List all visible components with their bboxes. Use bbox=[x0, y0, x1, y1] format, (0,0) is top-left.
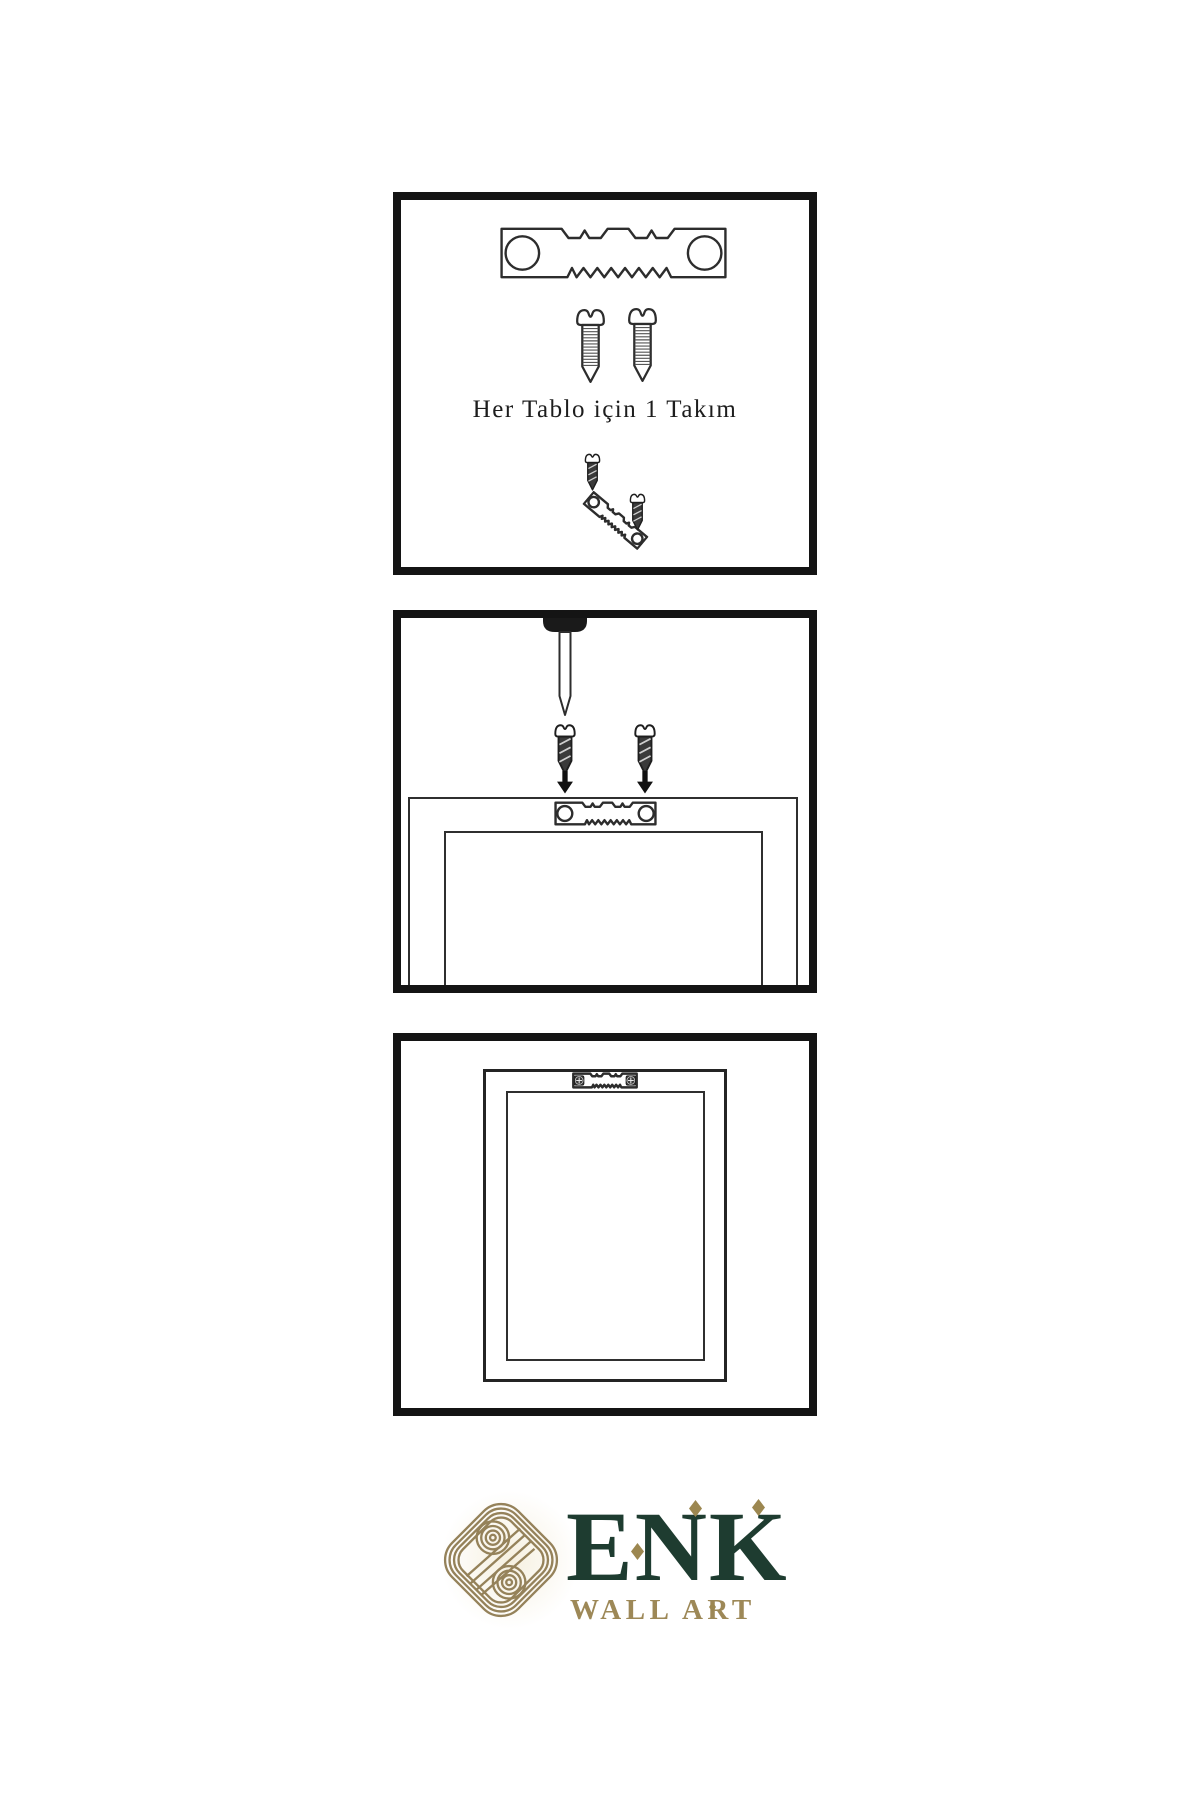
sawtooth-hanger-icon bbox=[554, 800, 657, 827]
screw-icon bbox=[572, 305, 609, 387]
frame-back-inner-edge bbox=[444, 831, 763, 992]
down-arrow-icon bbox=[556, 771, 574, 794]
knot-icon bbox=[440, 1490, 562, 1630]
hanger-assembly-graphic bbox=[566, 448, 696, 563]
brand-tagline: WALL ART bbox=[570, 1594, 756, 1627]
screw-icon bbox=[624, 304, 661, 386]
step2-panel bbox=[393, 610, 817, 993]
screw-dark-icon bbox=[628, 492, 647, 533]
mounted-sawtooth-hanger-icon bbox=[572, 1072, 638, 1089]
wall-nail-icon bbox=[543, 618, 587, 718]
down-arrow-icon bbox=[636, 771, 654, 794]
step1-panel: Her Tablo için 1 Takım bbox=[393, 192, 817, 575]
frame-inner-edge bbox=[506, 1091, 705, 1361]
sawtooth-hanger-icon bbox=[497, 223, 730, 283]
screw-dark-icon bbox=[583, 452, 602, 493]
brand-wordmark: ENK bbox=[566, 1497, 789, 1597]
step3-panel bbox=[393, 1033, 817, 1416]
step1-caption: Her Tablo için 1 Takım bbox=[401, 396, 809, 424]
screw-dark-icon bbox=[552, 722, 578, 778]
screw-dark-icon bbox=[632, 722, 658, 778]
